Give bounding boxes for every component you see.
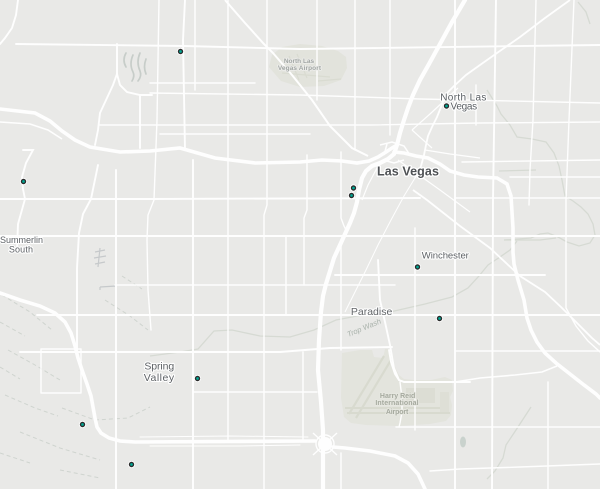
svg-text:Airport: Airport [386, 409, 409, 416]
svg-text:South: South [9, 245, 33, 255]
svg-text:International: International [375, 400, 418, 407]
svg-text:North Las: North Las [284, 58, 315, 65]
svg-text:Harry Reid: Harry Reid [380, 393, 415, 400]
svg-text:Spring: Spring [144, 361, 174, 373]
svg-text:Winchester: Winchester [422, 250, 469, 261]
svg-text:Vegas: Vegas [451, 102, 478, 113]
svg-text:Vegas Airport: Vegas Airport [278, 65, 322, 72]
svg-text:Valley: Valley [144, 372, 175, 384]
svg-text:Paradise: Paradise [351, 306, 393, 318]
svg-text:Las Vegas: Las Vegas [377, 165, 439, 179]
